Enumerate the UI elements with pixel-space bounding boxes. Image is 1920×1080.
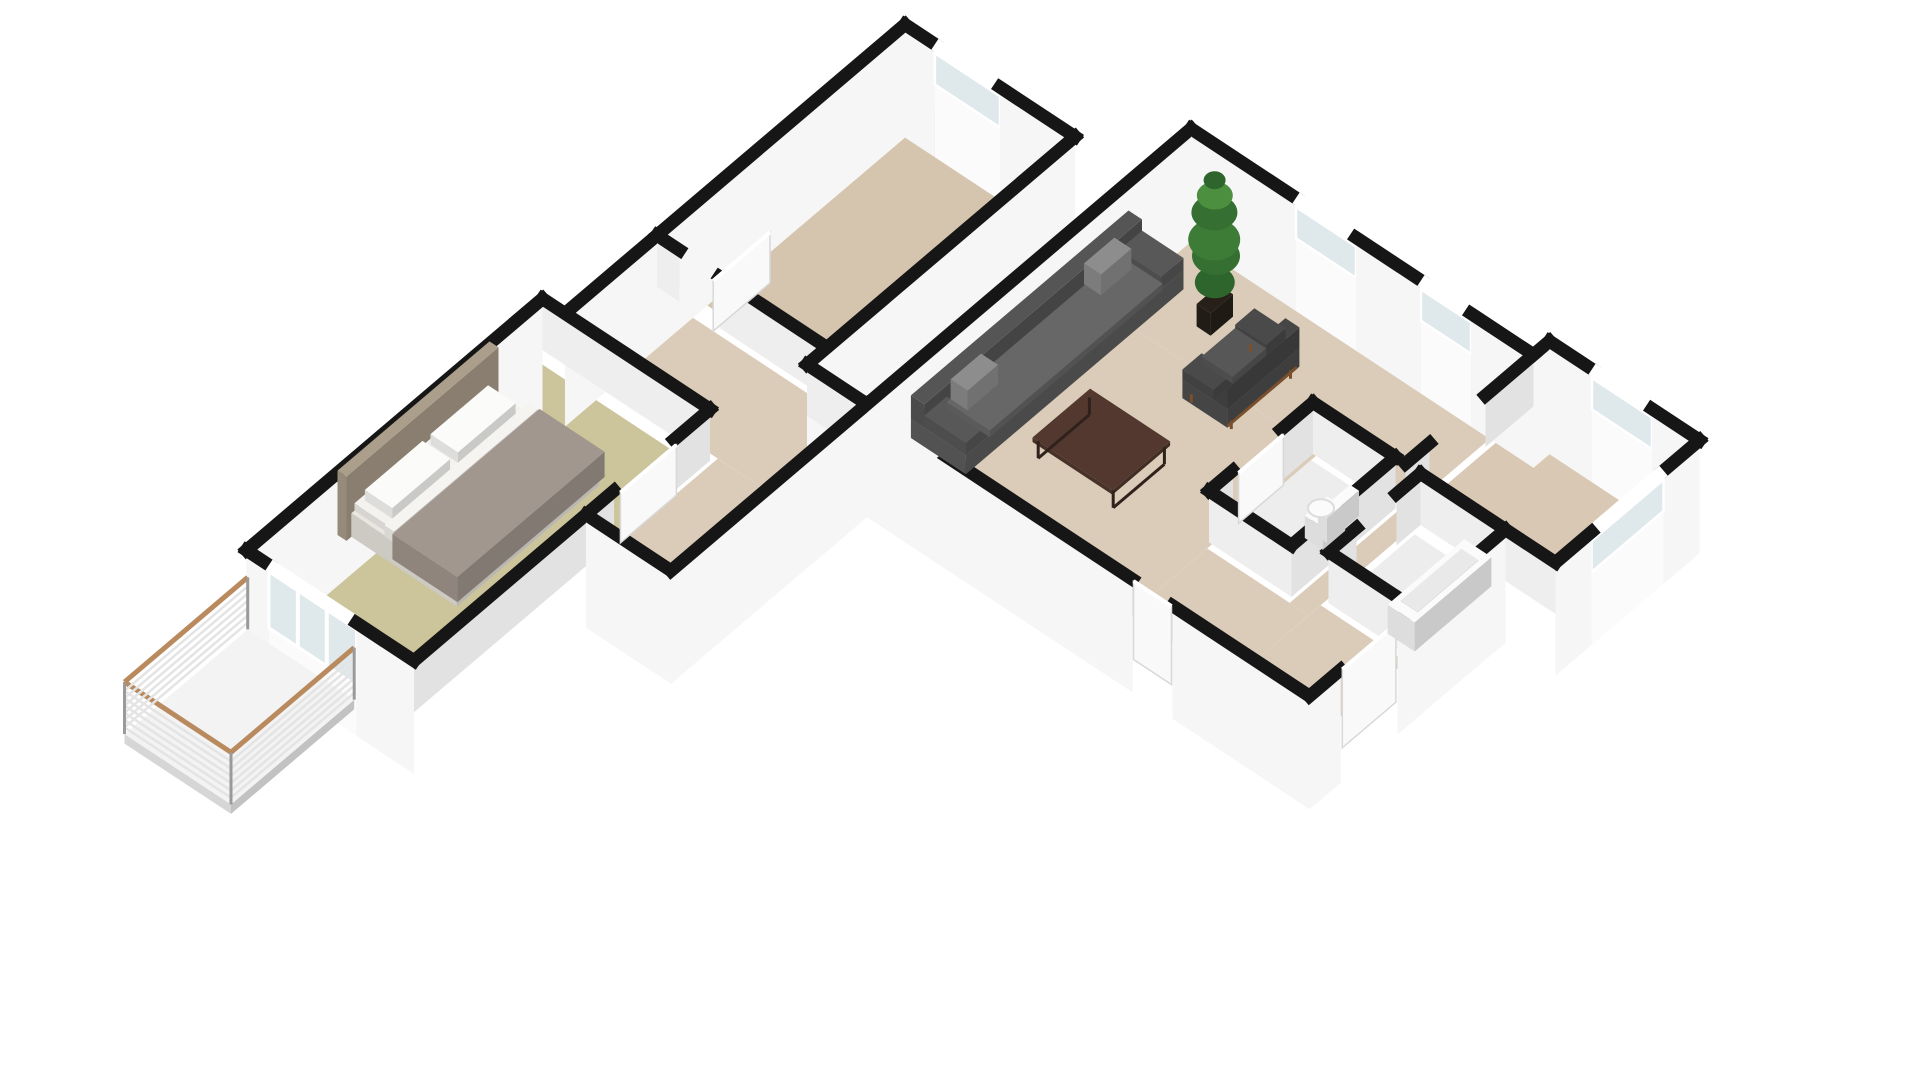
bed-headboard-south — [338, 471, 347, 541]
floorplan-page — [0, 0, 1920, 1080]
plant-foliage-6 — [1204, 171, 1226, 189]
toilet-bowl — [1308, 499, 1334, 517]
floorplan-canvas — [0, 0, 1920, 1080]
